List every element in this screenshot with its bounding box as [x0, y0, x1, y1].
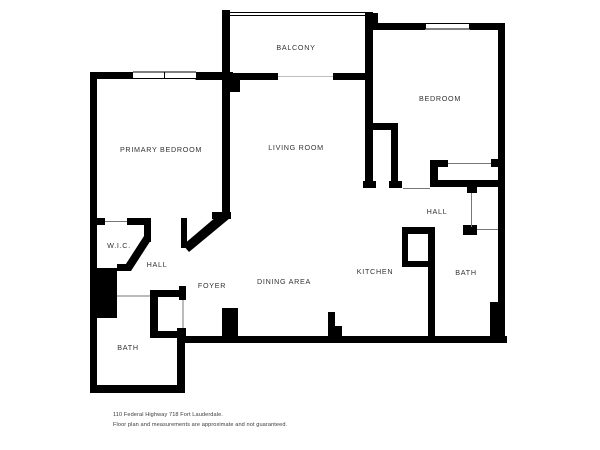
wall-pb-right: [222, 80, 230, 212]
wall-kitchen-alcove-bottom: [402, 261, 428, 267]
wall-balcony-bottom-left: [195, 73, 278, 80]
wall-closet-jamb-top: [179, 286, 186, 300]
wall-closet-jamb-bottom: [179, 328, 186, 343]
wall-end-cap: [363, 181, 376, 188]
wall-end-cap: [389, 181, 402, 188]
wall-living-bedroom-divider: [365, 12, 373, 188]
kitchen-step-block: [331, 326, 342, 340]
room-label-balcony: BALCONY: [276, 43, 315, 52]
floor-plan-drawing: BALCONY BEDROOM PRIMARY BEDROOM LIVING R…: [0, 0, 600, 450]
plumbing-chase-left: [93, 268, 117, 318]
window-bedroom: [425, 22, 470, 32]
room-label-foyer: FOYER: [198, 281, 226, 290]
room-label-hall-left: HALL: [147, 260, 168, 269]
room-label-wic: W.I.C.: [107, 241, 131, 250]
wall-foyer-closet-left: [150, 290, 158, 338]
wall-bath-left-bottom: [90, 385, 185, 393]
room-label-bedroom: BEDROOM: [419, 94, 461, 103]
wall-bath-right-jamb: [463, 225, 477, 235]
window-glass: [425, 22, 470, 32]
wall-kitchen-bath-divider: [428, 230, 435, 340]
room-label-dining-area: DINING AREA: [257, 277, 311, 286]
plumbing-chase-right: [490, 302, 505, 343]
room-label-bath-right: BATH: [455, 268, 476, 277]
wall-balcony-notch: [230, 80, 240, 92]
wall-chase-right: [391, 126, 398, 188]
wall-balcony-left: [222, 10, 230, 80]
wall-bedroom-closet-top: [430, 160, 448, 167]
room-label-living-room: LIVING ROOM: [268, 143, 324, 152]
wall-pb-bottom-a: [90, 218, 105, 225]
footer-disclaimer: Floor plan and measurements are approxim…: [113, 422, 288, 428]
window-primary-bedroom: [133, 71, 196, 80]
wall-bedroom-closet-stub: [491, 159, 498, 167]
room-label-primary-bedroom: PRIMARY BEDROOM: [120, 145, 202, 154]
room-label-kitchen: KITCHEN: [357, 267, 393, 276]
wall-hall-stub: [467, 187, 477, 193]
footer-address: 110 Federal Highway 718 Fort Lauderdale.: [113, 412, 223, 418]
wall-wic-bottom: [117, 264, 131, 271]
room-label-hall-right: HALL: [427, 207, 448, 216]
wall-left-outer: [90, 72, 97, 393]
wall-bedroom-bottom: [430, 180, 498, 187]
wall-right-outer: [498, 23, 505, 343]
floor-plan-page: BALCONY BEDROOM PRIMARY BEDROOM LIVING R…: [0, 0, 600, 450]
room-label-bath-left: BATH: [117, 343, 138, 352]
entry-wall-stub: [222, 308, 238, 340]
